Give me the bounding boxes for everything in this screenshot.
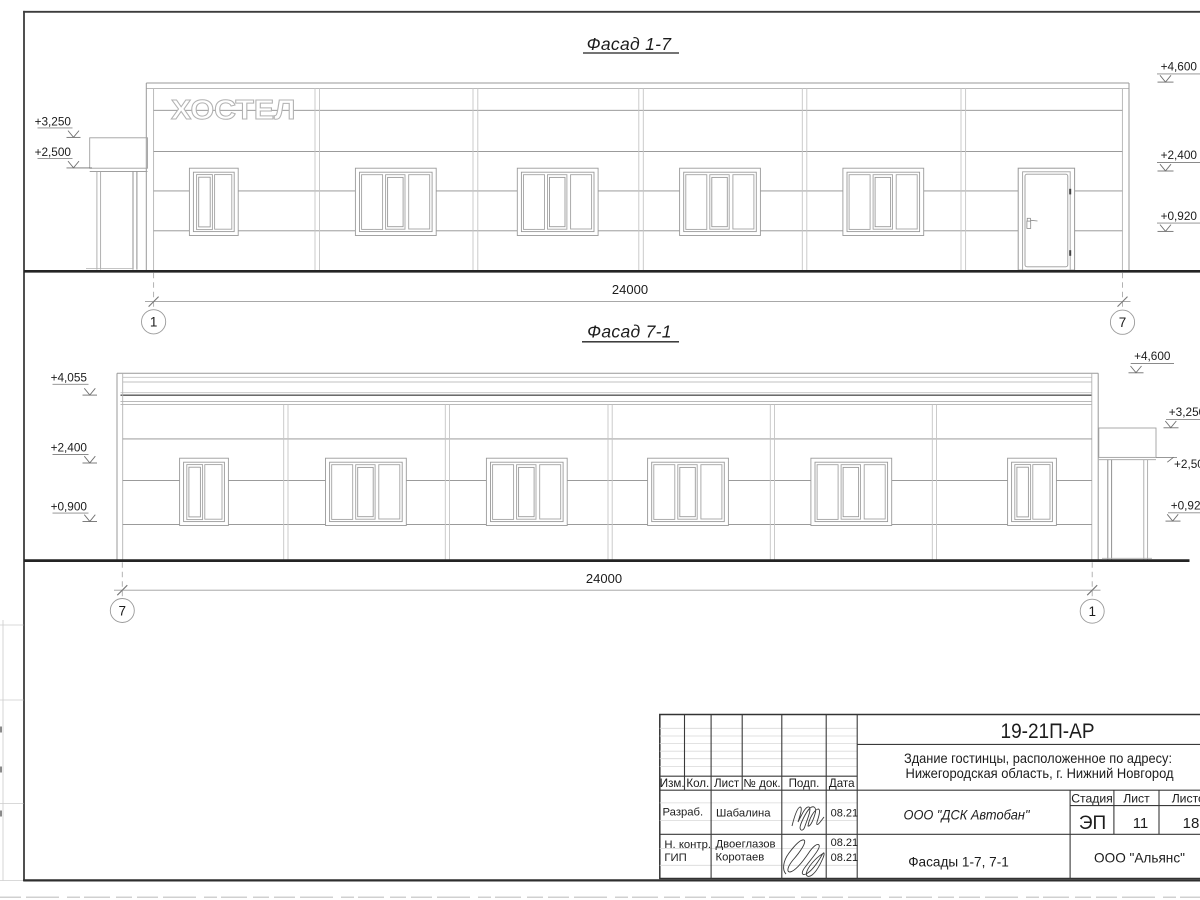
svg-text:Дата: Дата [829, 777, 855, 790]
svg-text:Разраб.: Разраб. [663, 806, 704, 818]
svg-text:Коротаев: Коротаев [716, 852, 765, 864]
svg-text:Шабалина: Шабалина [716, 808, 771, 820]
svg-text:+2,500: +2,500 [35, 145, 72, 159]
svg-text:+0,920: +0,920 [1171, 498, 1200, 512]
svg-text:+3,250: +3,250 [35, 114, 72, 128]
svg-text:ООО "ДСК Автобан": ООО "ДСК Автобан" [904, 807, 1031, 823]
svg-text:Здание гостинцы, расположенное: Здание гостинцы, расположенное по адресу… [904, 751, 1172, 766]
svg-text:08.21: 08.21 [831, 837, 859, 849]
svg-text:+4,600: +4,600 [1134, 349, 1171, 363]
svg-text:Лист: Лист [714, 777, 740, 790]
svg-text:18: 18 [1183, 815, 1200, 832]
svg-text:Фасад 7-1: Фасад 7-1 [587, 321, 672, 341]
svg-text:24000: 24000 [612, 282, 648, 297]
svg-text:7: 7 [119, 603, 127, 618]
svg-text:ООО "Альянс": ООО "Альянс" [1094, 850, 1185, 865]
svg-text:+2,400: +2,400 [1161, 148, 1198, 162]
svg-text:11: 11 [1133, 815, 1149, 832]
svg-text:08.21: 08.21 [831, 807, 859, 819]
svg-text:+4,600: +4,600 [1161, 60, 1198, 74]
svg-text:+4,055: +4,055 [51, 371, 88, 385]
svg-text:+3,250: +3,250 [1169, 405, 1200, 419]
svg-text:Н. контр.: Н. контр. [664, 839, 711, 851]
svg-text:Стадия: Стадия [1071, 792, 1113, 806]
svg-text:24000: 24000 [586, 571, 622, 586]
svg-text:Кол.: Кол. [686, 777, 709, 790]
svg-text:+2,400: +2,400 [51, 440, 88, 454]
svg-text:1: 1 [150, 315, 158, 330]
svg-text:Лист: Лист [1123, 792, 1150, 806]
svg-text:+0,920: +0,920 [1161, 209, 1198, 223]
svg-text:ГИП: ГИП [664, 852, 686, 864]
svg-text:Фасад 1-7: Фасад 1-7 [587, 34, 673, 54]
svg-text:+0,900: +0,900 [51, 500, 88, 514]
svg-text:Изм.: Изм. [660, 777, 685, 790]
svg-text:08.21: 08.21 [831, 852, 859, 864]
svg-text:№ док.: № док. [743, 777, 780, 790]
svg-text:Фасады 1-7, 7-1: Фасады 1-7, 7-1 [908, 855, 1009, 870]
svg-text:ЭП: ЭП [1079, 813, 1106, 834]
svg-text:+2,500: +2,500 [1174, 457, 1200, 471]
svg-text:Подп.: Подп. [789, 777, 820, 790]
svg-text:Нижегородская область, г. Нижн: Нижегородская область, г. Нижний Новгоро… [906, 766, 1174, 781]
svg-text:7: 7 [1119, 315, 1127, 330]
svg-text:1: 1 [1088, 604, 1096, 619]
svg-text:ХОСТЕЛ: ХОСТЕЛ [171, 94, 296, 125]
svg-text:Листов: Листов [1172, 792, 1200, 806]
svg-text:19-21П-АР: 19-21П-АР [1001, 720, 1095, 743]
svg-text:Двоеглазов: Двоеглазов [716, 838, 776, 850]
